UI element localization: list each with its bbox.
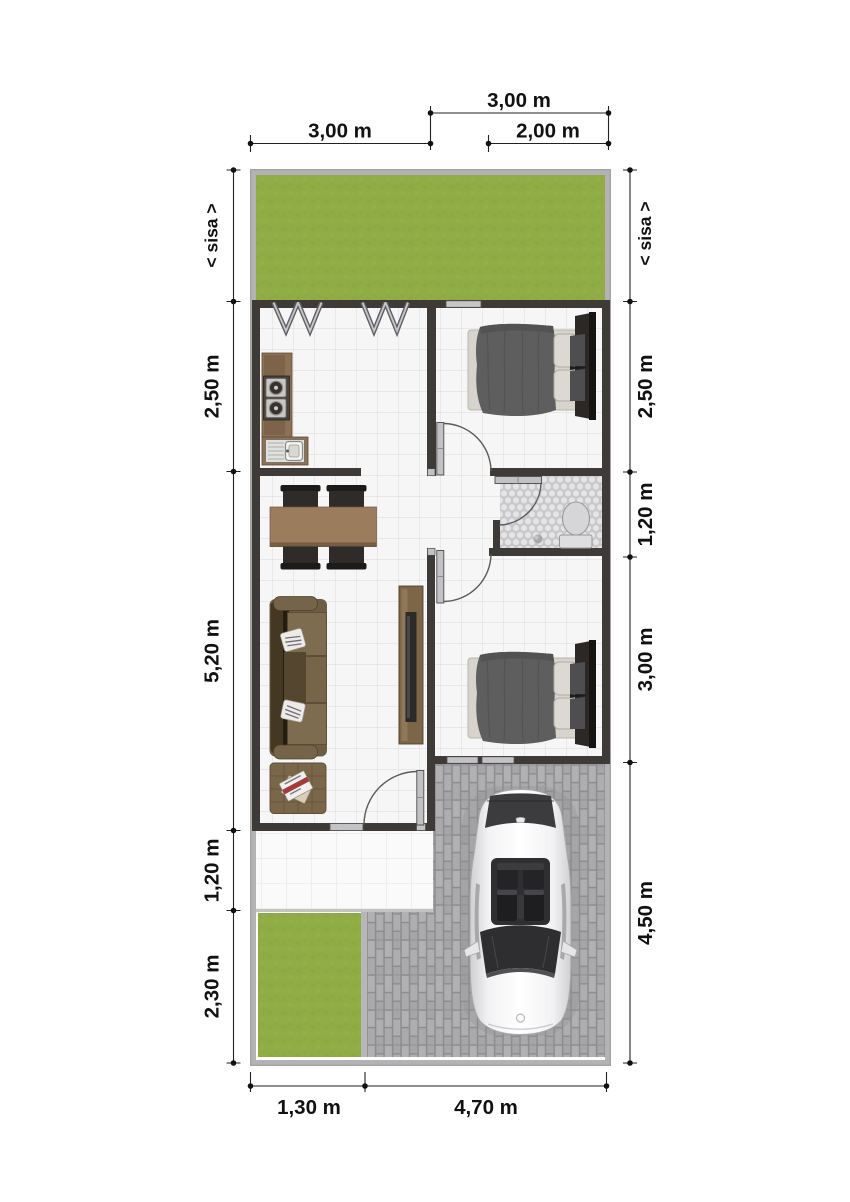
svg-text:3,00 m: 3,00 m [308, 120, 372, 143]
svg-text:2,50 m: 2,50 m [634, 355, 657, 419]
svg-text:1,20 m: 1,20 m [634, 483, 657, 547]
svg-text:< sisa >: < sisa > [202, 203, 222, 267]
svg-text:1,20 m: 1,20 m [201, 839, 224, 903]
svg-text:2,00 m: 2,00 m [516, 120, 580, 143]
svg-text:2,30 m: 2,30 m [201, 955, 224, 1019]
svg-text:1,30 m: 1,30 m [277, 1096, 341, 1119]
svg-text:3,00 m: 3,00 m [634, 628, 657, 692]
svg-text:4,70 m: 4,70 m [454, 1096, 518, 1119]
svg-text:5,20 m: 5,20 m [201, 619, 224, 683]
svg-text:< sisa >: < sisa > [635, 201, 655, 265]
svg-text:3,00 m: 3,00 m [487, 89, 551, 112]
svg-text:4,50 m: 4,50 m [634, 881, 657, 945]
svg-text:2,50 m: 2,50 m [201, 355, 224, 419]
